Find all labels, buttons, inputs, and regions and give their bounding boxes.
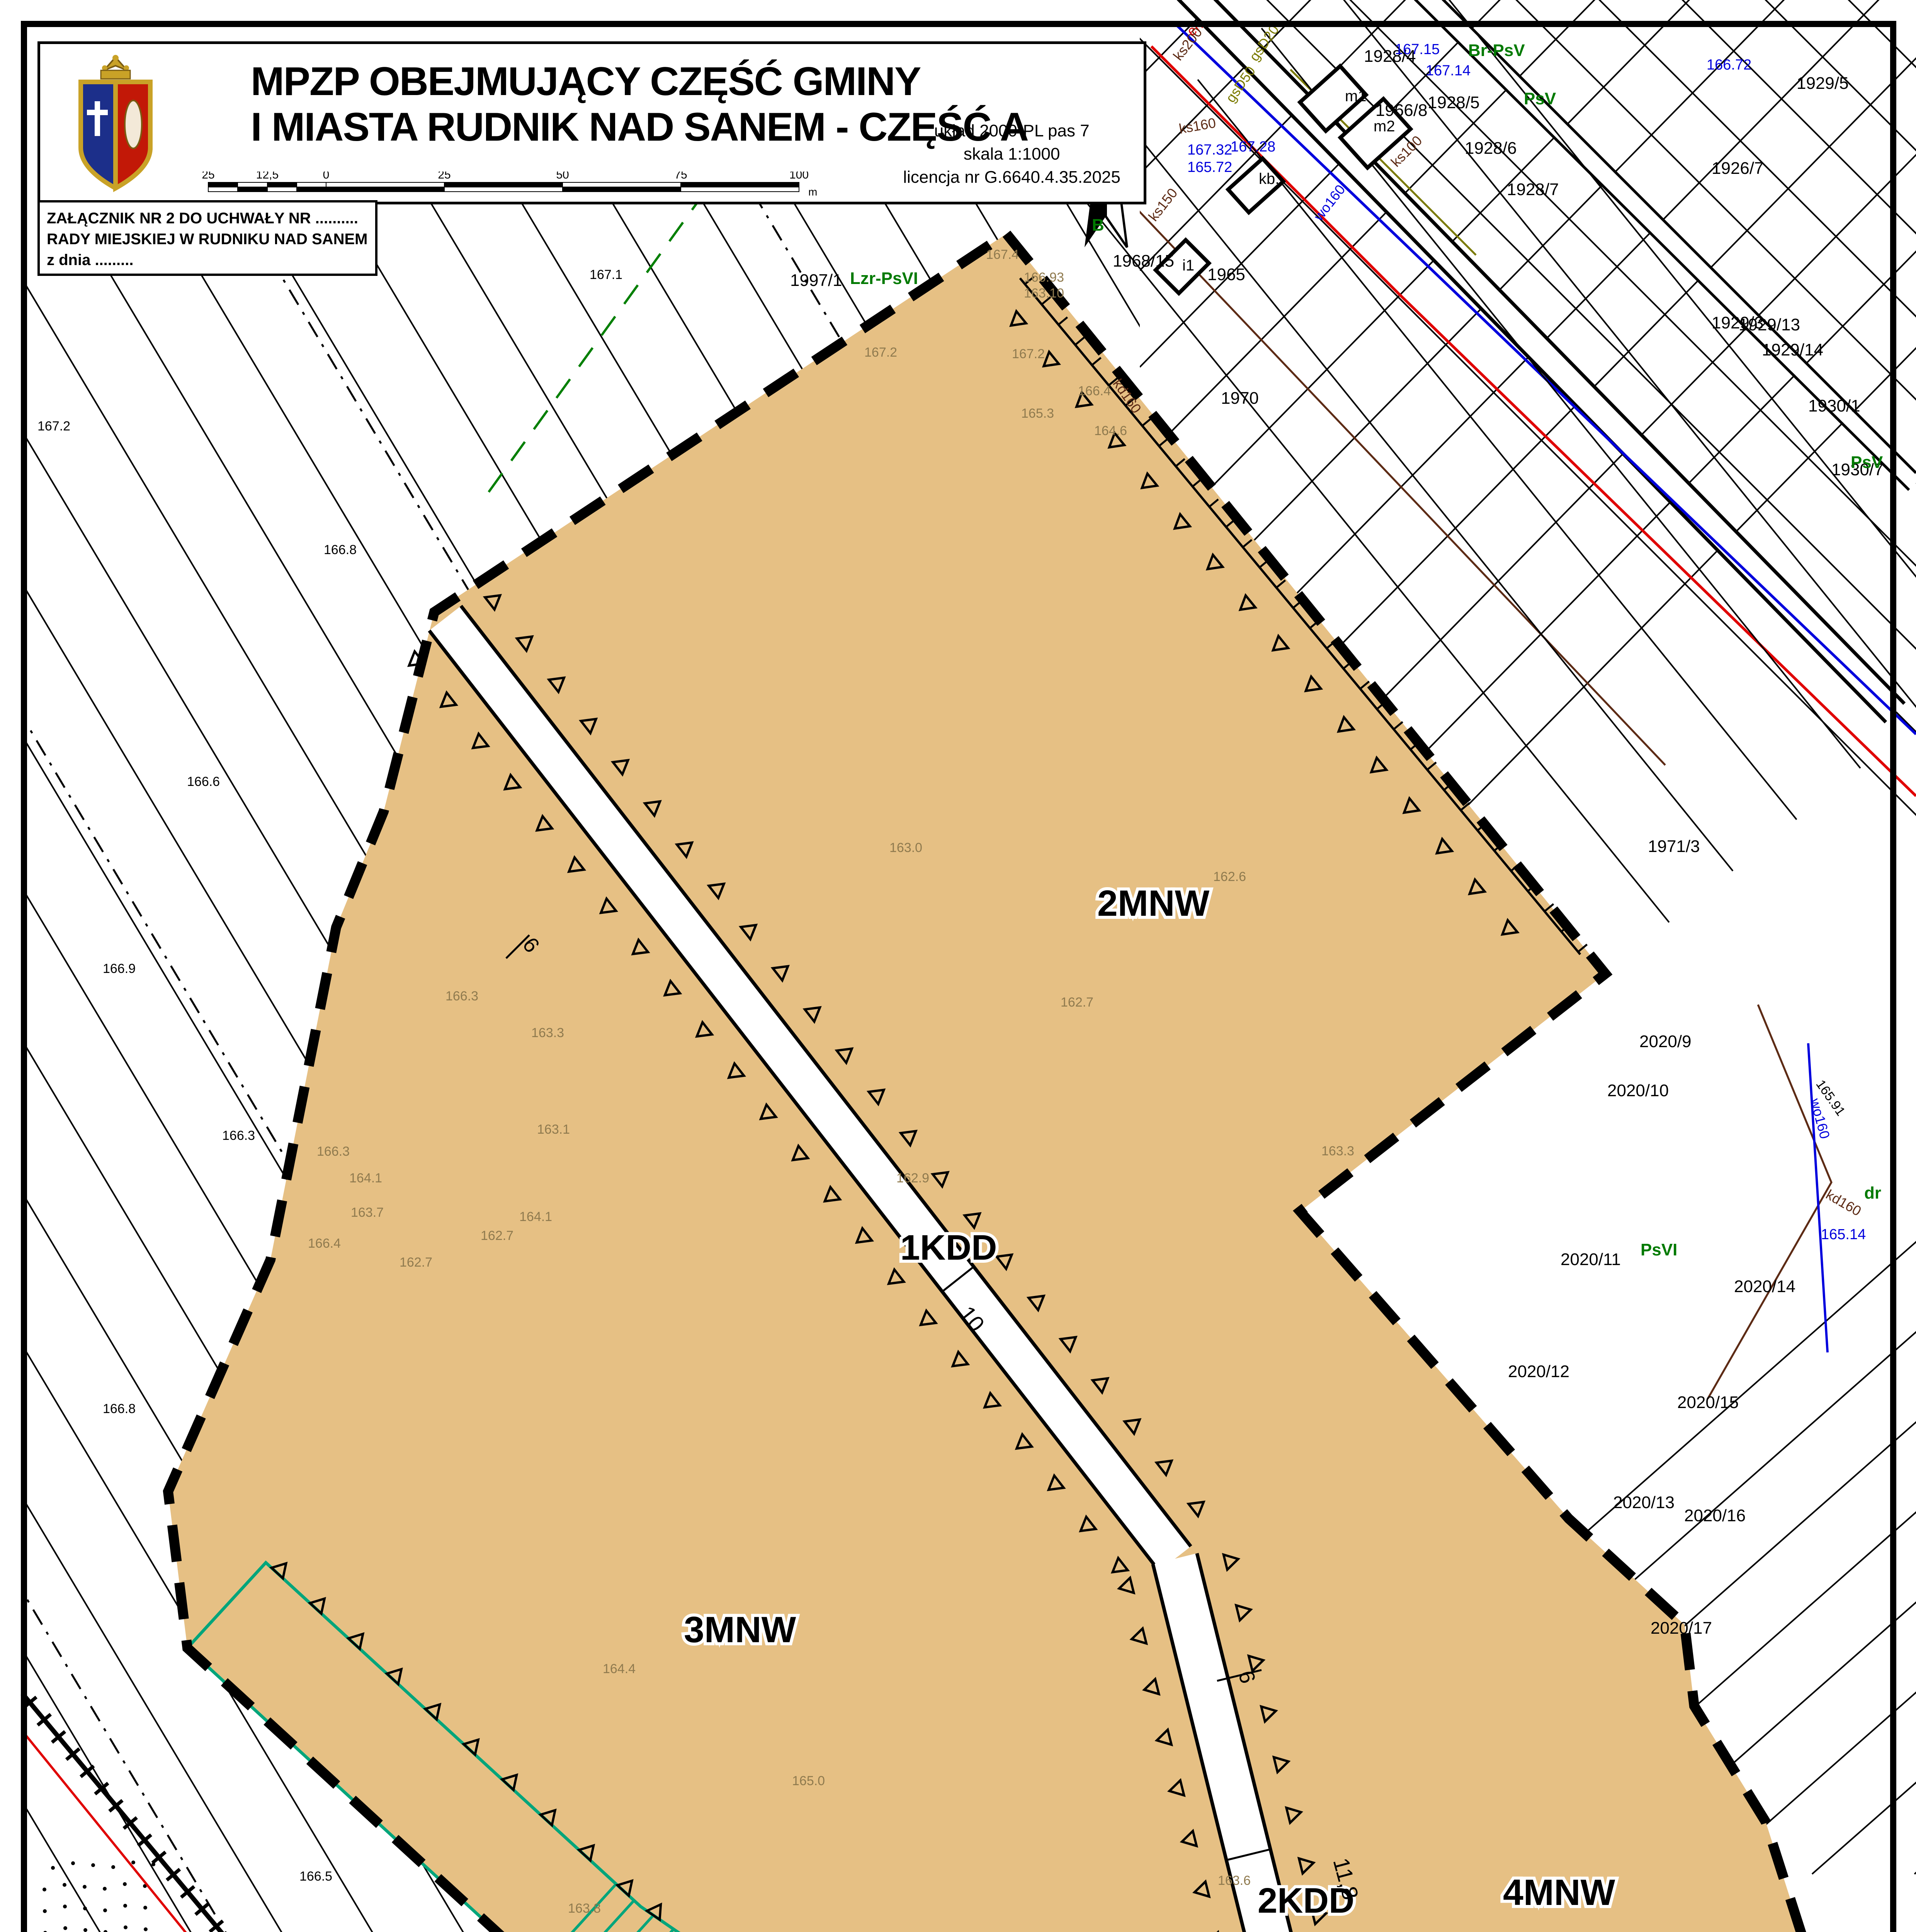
map-label: 2020/12 <box>1508 1362 1569 1381</box>
coat-of-arms <box>58 55 173 194</box>
area-label: 2MNW <box>1097 883 1210 924</box>
map-label: m2 <box>1374 118 1395 135</box>
scalebar-unit: m <box>808 186 817 198</box>
map-label: 163.8 <box>568 1901 601 1916</box>
map-label: 167.14 <box>1426 63 1471 79</box>
map-label: 167.2 <box>1012 347 1045 361</box>
map-label: 2020/10 <box>1607 1081 1669 1100</box>
map-label: 1929/13 <box>1739 315 1800 334</box>
map-label: PsV <box>1524 89 1556 108</box>
map-label: 166.4 <box>308 1236 341 1251</box>
crs-label: układ 2000-PL pas 7 <box>903 119 1120 143</box>
scalebar-tick-label: 12,5 <box>256 172 279 181</box>
scalebar-tick-label: 50 <box>556 172 569 181</box>
map-label: 1928/5 <box>1428 93 1480 112</box>
map-label: 163.10 <box>1024 286 1064 301</box>
map-label: 1928/6 <box>1465 139 1517 158</box>
map-label: 1970 <box>1221 389 1259 408</box>
map-label: 166.6 <box>187 774 220 789</box>
map-label: Lzr-PsVI <box>850 269 918 288</box>
map-label: 167.4 <box>986 247 1019 262</box>
map-label: 2020/17 <box>1651 1619 1712 1638</box>
title-block: MPZP OBEJMUJĄCY CZĘŚĆ GMINY I MIASTA RUD… <box>37 41 1146 204</box>
map-label: 166.72 <box>1707 57 1751 73</box>
map-label: 166.8 <box>103 1401 136 1416</box>
map-label: 166.4 <box>1078 384 1111 398</box>
map-label: 166.5 <box>299 1869 332 1884</box>
map-label: PsVI <box>1641 1240 1677 1259</box>
map-label: m1 <box>1345 88 1367 105</box>
map-label: 2020/15 <box>1677 1393 1739 1412</box>
map-label: 162.9 <box>896 1171 929 1185</box>
map-label: 165.3 <box>1021 406 1054 421</box>
scale-label: skala 1:1000 <box>903 143 1120 166</box>
map-label: 1929/14 <box>1762 340 1823 359</box>
map-label: 1968/15 <box>1113 252 1174 270</box>
map-label: 1926/7 <box>1712 159 1764 178</box>
map-label: 163.1 <box>537 1122 570 1137</box>
map-title-line1: MPZP OBEJMUJĄCY CZĘŚĆ GMINY <box>251 59 921 104</box>
scale-bar: 2512,50255075100m <box>164 172 840 202</box>
map-label: 165.72 <box>1187 159 1232 175</box>
scalebar-tick-label: 75 <box>674 172 687 181</box>
licence-label: licencja nr G.6640.4.35.2025 <box>903 166 1120 189</box>
area-label: 1KDD <box>900 1228 997 1267</box>
map-meta: układ 2000-PL pas 7 skala 1:1000 licencj… <box>903 119 1120 189</box>
map-label: 162.7 <box>400 1255 432 1270</box>
map-label: 1971/3 <box>1648 837 1700 856</box>
map-label: i1 <box>1182 257 1194 274</box>
map-label: 163.7 <box>351 1205 384 1220</box>
map-label: 163.3 <box>531 1026 564 1040</box>
map-label: 167.2 <box>37 419 70 434</box>
map-label: 167.32 <box>1187 142 1232 158</box>
area-label: 4MNW <box>1503 1872 1615 1913</box>
map-label: 165.14 <box>1821 1226 1866 1243</box>
map-label: 166.93 <box>1024 270 1064 285</box>
map-label: Br-PsV <box>1468 41 1525 60</box>
map-label: 163.3 <box>1321 1144 1354 1158</box>
map-label: 163.0 <box>889 840 922 855</box>
scalebar-tick-label: 100 <box>789 172 809 181</box>
map-label: 167.1 <box>590 267 622 282</box>
map-label: 164.1 <box>519 1209 552 1224</box>
map-label: 1929/5 <box>1797 74 1849 93</box>
map-canvas: 2MNW3MNW4MNW1KDD2KDD1011,8666101997/1196… <box>0 0 1916 1932</box>
map-label: dr <box>1864 1184 1881 1202</box>
plan-sheet: 2MNW3MNW4MNW1KDD2KDD1011,8666101997/1196… <box>0 0 1916 1932</box>
map-label: kb. <box>1259 170 1279 187</box>
map-label: 2020/11 <box>1561 1250 1621 1269</box>
map-label: 1928/7 <box>1507 180 1559 199</box>
map-label: 166.3 <box>222 1128 255 1143</box>
map-label: PsV <box>1851 453 1883 472</box>
map-label: 164.1 <box>349 1171 382 1185</box>
map-label: 165.0 <box>792 1774 825 1788</box>
map-label: 2020/13 <box>1613 1493 1675 1512</box>
map-label: 2020/16 <box>1684 1506 1746 1525</box>
map-label: 164.6 <box>1094 423 1127 438</box>
area-label: 3MNW <box>684 1609 796 1650</box>
map-label: 1966/8 <box>1375 101 1428 120</box>
map-label: 164.4 <box>603 1662 636 1676</box>
annex-line1: ZAŁĄCZNIK NR 2 DO UCHWAŁY NR .......... <box>47 208 368 229</box>
map-label: 167.28 <box>1231 139 1275 155</box>
map-label: 166.3 <box>317 1144 350 1159</box>
map-label: 1930/1 <box>1808 396 1860 415</box>
scalebar-tick-label: 0 <box>323 172 330 181</box>
annex-line2: RADY MIEJSKIEJ W RUDNIKU NAD SANEM <box>47 229 368 250</box>
map-label: 166.3 <box>445 989 478 1003</box>
map-label: 162.6 <box>1213 869 1246 884</box>
map-label: 1997/1 <box>790 271 842 290</box>
scalebar-tick-label: 25 <box>202 172 214 181</box>
map-label: 166.8 <box>324 543 357 557</box>
map-label: 167.15 <box>1395 41 1440 58</box>
map-label: B <box>1092 216 1104 235</box>
annex-box: ZAŁĄCZNIK NR 2 DO UCHWAŁY NR .......... … <box>37 200 377 276</box>
map-label: 162.7 <box>1061 995 1093 1010</box>
map-label: 1965 <box>1207 265 1245 284</box>
map-label: 167.2 <box>864 345 897 360</box>
map-label: 2020/14 <box>1734 1277 1795 1296</box>
map-label: 166.9 <box>103 961 136 976</box>
map-label: 162.7 <box>481 1228 513 1243</box>
annex-line3: z dnia ......... <box>47 250 368 270</box>
scalebar-tick-label: 25 <box>438 172 451 181</box>
map-label: 163.6 <box>1218 1873 1251 1888</box>
map-label: 2020/9 <box>1639 1032 1692 1051</box>
